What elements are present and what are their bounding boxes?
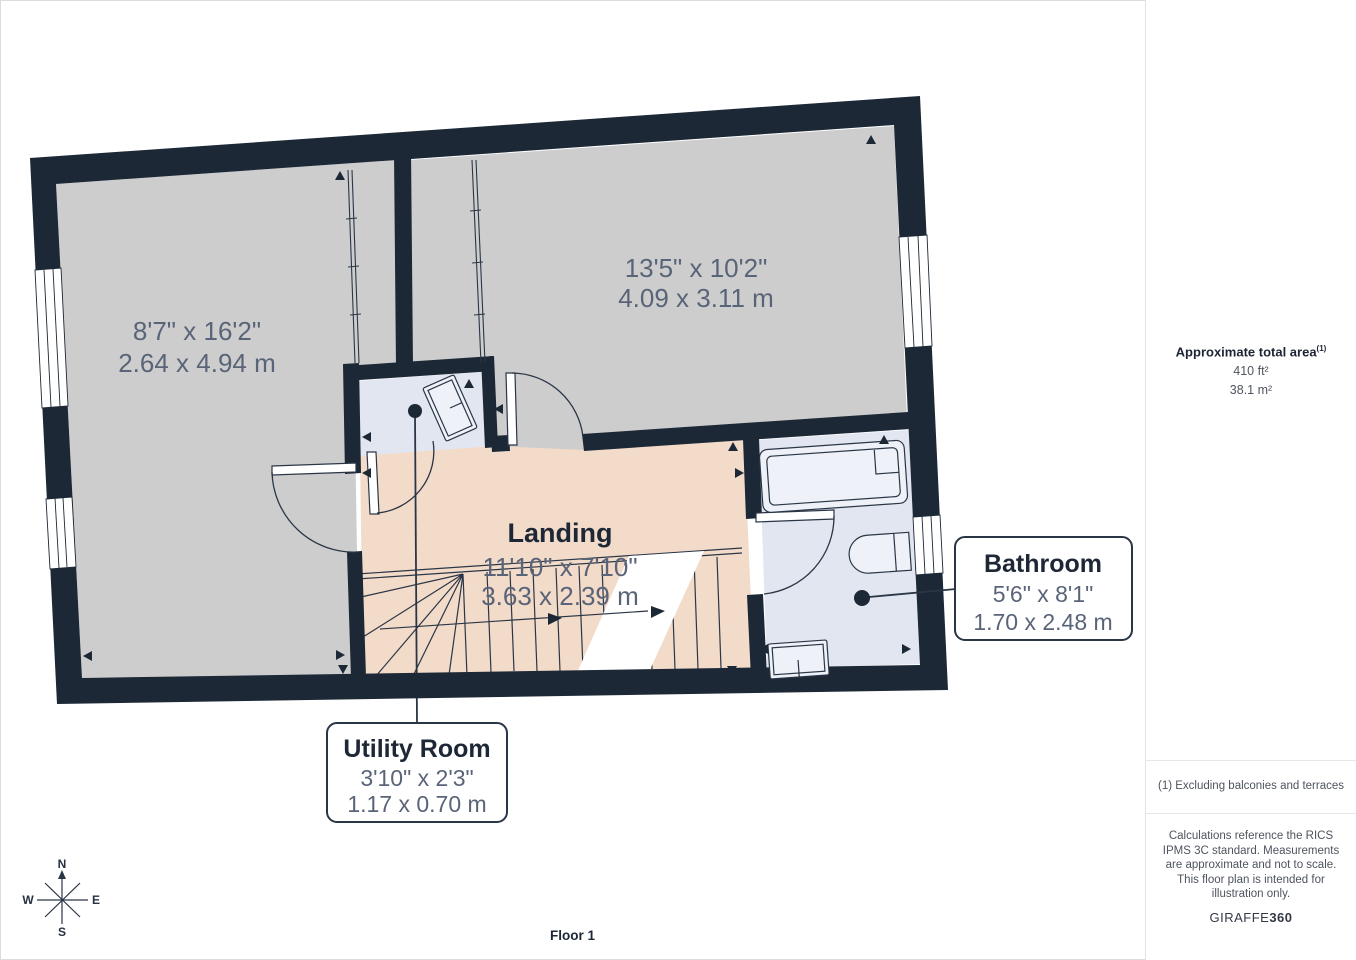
wall-door-jamb: [491, 435, 510, 452]
utility-leader-dot: [408, 404, 422, 418]
wall-bathroom-left-upper: [743, 438, 762, 519]
floor-label: Floor 1: [0, 928, 1145, 943]
callout-utility-metric: 1.17 x 0.70 m: [347, 791, 486, 817]
window-right-lower: [913, 515, 943, 575]
wall-leftroom-landing-upper: [343, 363, 361, 474]
callout-utility-room: Utility Room 3'10" x 2'3" 1.17 x 0.70 m: [327, 723, 507, 822]
brand-logo: GIRAFFE360: [1146, 910, 1356, 925]
bathtub: [759, 440, 908, 513]
landing-dims-metric: 3.63 x 2.39 m: [481, 581, 639, 611]
compass-n: N: [58, 857, 67, 871]
sidebar-divider: [1146, 813, 1356, 814]
callout-bathroom: Bathroom 5'6" x 8'1" 1.70 x 2.48 m: [955, 537, 1132, 640]
callout-utility-imperial: 3'10" x 2'3": [360, 765, 473, 791]
wall-chimney: [394, 152, 413, 367]
total-area-ft: 410 ft²: [1146, 364, 1356, 378]
landing-dims-imperial: 11'10" x 7'10": [482, 552, 637, 582]
window-left-lower: [46, 497, 76, 569]
window-right-upper: [899, 235, 932, 348]
footnote-text: (1) Excluding balconies and terraces: [1154, 780, 1348, 792]
top-right-room-dims-imperial: 13'5" x 10'2": [625, 253, 768, 283]
sidebar-divider: [1146, 760, 1356, 761]
total-area-m: 38.1 m²: [1146, 383, 1356, 397]
floorplan-page: 8'7" x 16'2" 2.64 x 4.94 m 13'5" x 10'2"…: [0, 0, 1356, 960]
landing-title: Landing: [508, 518, 613, 548]
left-room-dims-metric: 2.64 x 4.94 m: [118, 348, 276, 378]
left-room-dims-imperial: 8'7" x 16'2": [133, 316, 261, 346]
total-area-block: Approximate total area(1) 410 ft² 38.1 m…: [1146, 344, 1356, 397]
compass-w: W: [22, 893, 34, 907]
sink: [848, 532, 912, 574]
utility-room-floor: [357, 371, 497, 457]
total-area-title: Approximate total area(1): [1146, 344, 1356, 359]
compass-north-arrow-icon: [58, 870, 66, 879]
callout-bathroom-title: Bathroom: [984, 550, 1102, 578]
callout-bathroom-imperial: 5'6" x 8'1": [993, 581, 1094, 607]
callout-bathroom-metric: 1.70 x 2.48 m: [973, 609, 1112, 635]
toilet: [768, 640, 829, 679]
compass-rose-icon: [37, 870, 88, 924]
disclaimer-text: Calculations reference the RICS IPMS 3C …: [1158, 829, 1344, 902]
footnote-ref: (1): [1317, 344, 1327, 353]
compass-e: E: [92, 893, 100, 907]
bathroom-leader-dot: [854, 590, 870, 606]
top-right-room-dims-metric: 4.09 x 3.11 m: [618, 283, 774, 313]
callout-utility-title: Utility Room: [343, 735, 490, 763]
info-sidebar: Approximate total area(1) 410 ft² 38.1 m…: [1145, 0, 1356, 960]
